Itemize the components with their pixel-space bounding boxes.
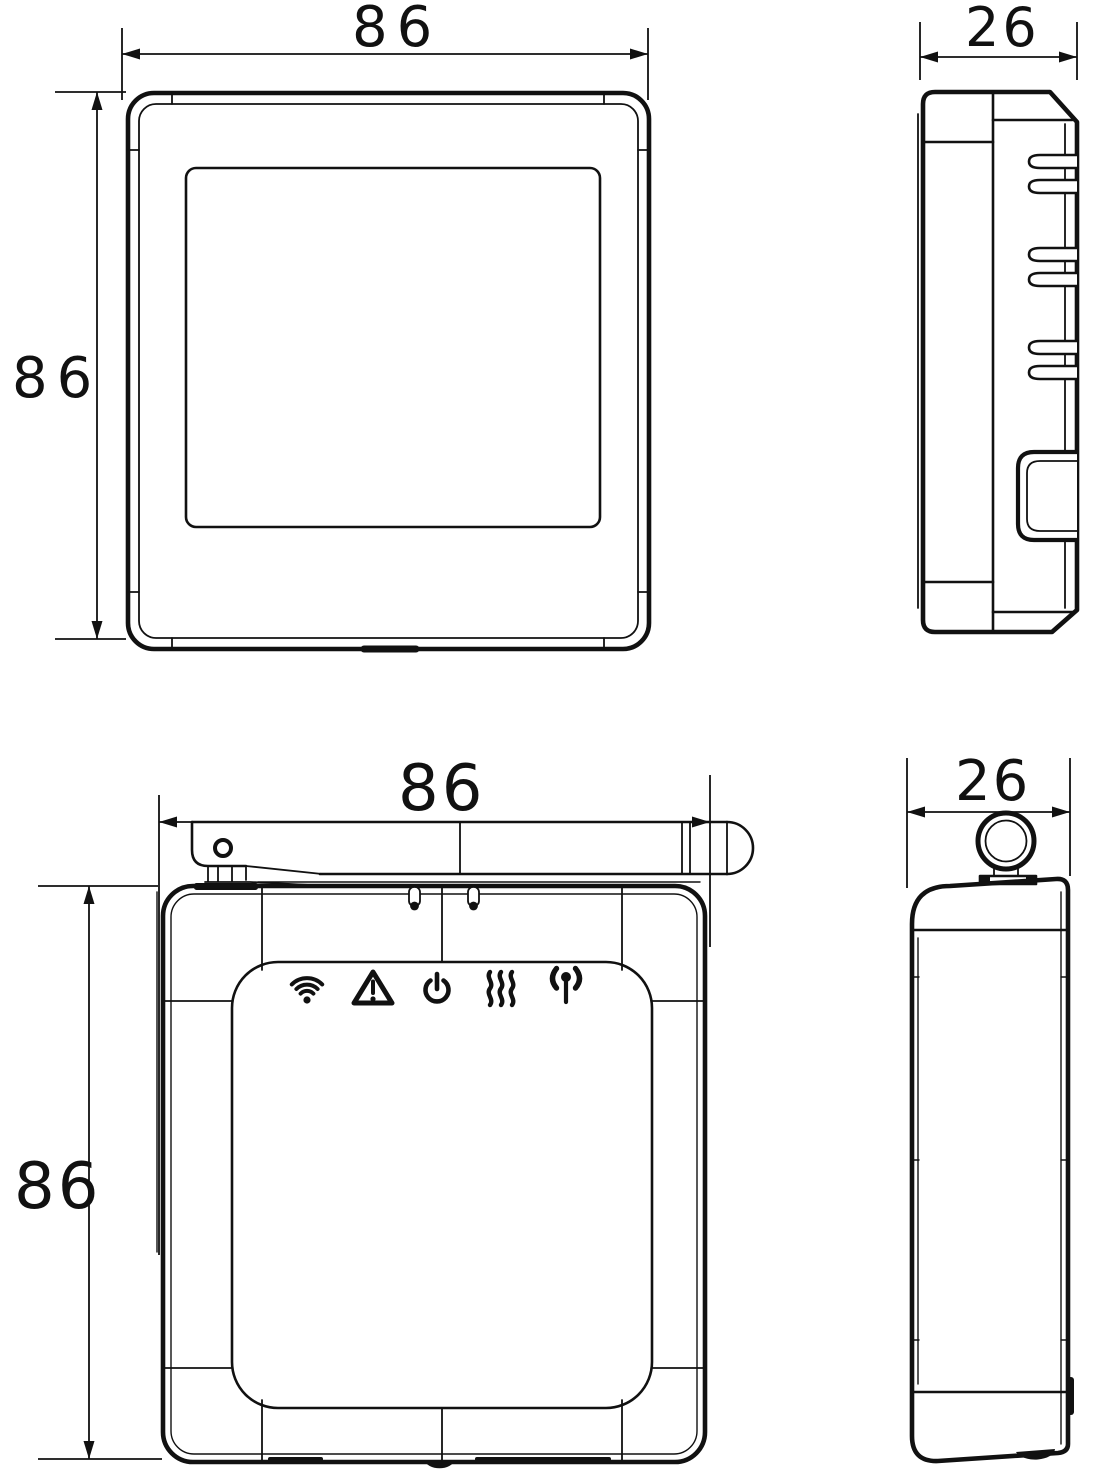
top-clip-tip — [469, 902, 478, 911]
housing-parting-ticks — [128, 93, 649, 649]
drawing-canvas: 86 86 26 — [0, 0, 1100, 1474]
depth-label: 26 — [955, 749, 1030, 814]
antenna-pivot — [215, 840, 231, 856]
antenna-hinge-block — [192, 822, 246, 866]
width-label: 86 — [352, 0, 441, 60]
warning-icon — [354, 972, 392, 1003]
thermostat-front-view: 86 86 — [12, 0, 649, 649]
antenna-ring-outer — [978, 813, 1034, 869]
power-icon — [426, 974, 449, 1001]
mounting-prong — [1029, 341, 1077, 354]
bottom-edge-rib — [268, 1457, 323, 1463]
dimension-drawing: 86 86 26 — [0, 0, 1100, 1474]
wifi-icon — [292, 978, 322, 1003]
width-dimension: 86 — [122, 0, 648, 100]
thermostat-bezel — [139, 104, 638, 638]
depth-label: 26 — [965, 0, 1040, 59]
thermostat-screen — [186, 168, 600, 527]
arrowhead-right — [630, 49, 648, 60]
height-label: 86 — [14, 1150, 101, 1224]
antenna-seams — [460, 822, 727, 874]
side-clip-tab — [1066, 1377, 1074, 1415]
edge-notches — [912, 977, 1068, 1340]
bottom-edge-details — [268, 1457, 611, 1468]
antenna-cap — [727, 822, 753, 874]
inner-edge-lines — [918, 892, 1061, 1444]
top-clip-tip — [410, 902, 419, 911]
side-body-outline — [923, 92, 1077, 632]
receiver-side-outline — [912, 879, 1068, 1461]
heating-icon — [489, 972, 514, 1005]
receiver-outer-housing — [163, 886, 705, 1462]
extension-lines — [159, 775, 710, 1255]
thermostat-side-view: 26 — [918, 0, 1077, 632]
arrowhead-right — [1059, 52, 1077, 63]
arrowhead-right — [1052, 807, 1070, 818]
mounting-prong — [1029, 273, 1077, 286]
antenna-pivot-side — [978, 813, 1036, 884]
mounting-prong — [1029, 155, 1077, 168]
arrowhead-bottom — [92, 621, 103, 639]
bottom-edge-rib — [475, 1457, 611, 1463]
mounting-prong — [1029, 180, 1077, 193]
arrowhead-left — [920, 52, 938, 63]
bottom-foot — [1016, 1449, 1055, 1460]
bottom-release-tab — [424, 1460, 455, 1468]
status-icon-row — [292, 969, 580, 1006]
depth-dimension: 26 — [920, 0, 1077, 80]
arrowhead-left — [122, 49, 140, 60]
antenna-ring-inner — [986, 821, 1027, 862]
arrowhead-top — [84, 886, 95, 904]
receiver-side-view: 26 — [907, 749, 1074, 1461]
mounting-prong — [1029, 366, 1077, 379]
top-clips — [409, 887, 479, 910]
mounting-prong — [1029, 248, 1077, 261]
arrowhead-top — [92, 92, 103, 110]
cap-seam-lines — [912, 930, 1068, 1392]
height-dimension: 86 — [12, 92, 126, 639]
antenna-assembly — [192, 822, 753, 890]
thermostat-outer-housing — [128, 93, 649, 649]
width-label: 86 — [398, 752, 485, 826]
receiver-front-view: 86 86 — [14, 752, 753, 1468]
arrowhead-bottom — [84, 1441, 95, 1459]
wall-clip — [1018, 452, 1077, 540]
height-dimension: 86 — [14, 886, 162, 1459]
receiver-housing-inner-line — [171, 894, 697, 1454]
arrowhead-left — [907, 807, 925, 818]
arrowhead-left — [159, 817, 177, 828]
mounting-prongs — [1029, 155, 1077, 379]
rf-antenna-icon — [553, 969, 580, 1003]
receiver-front-panel — [232, 962, 652, 1408]
height-label: 86 — [12, 346, 101, 411]
